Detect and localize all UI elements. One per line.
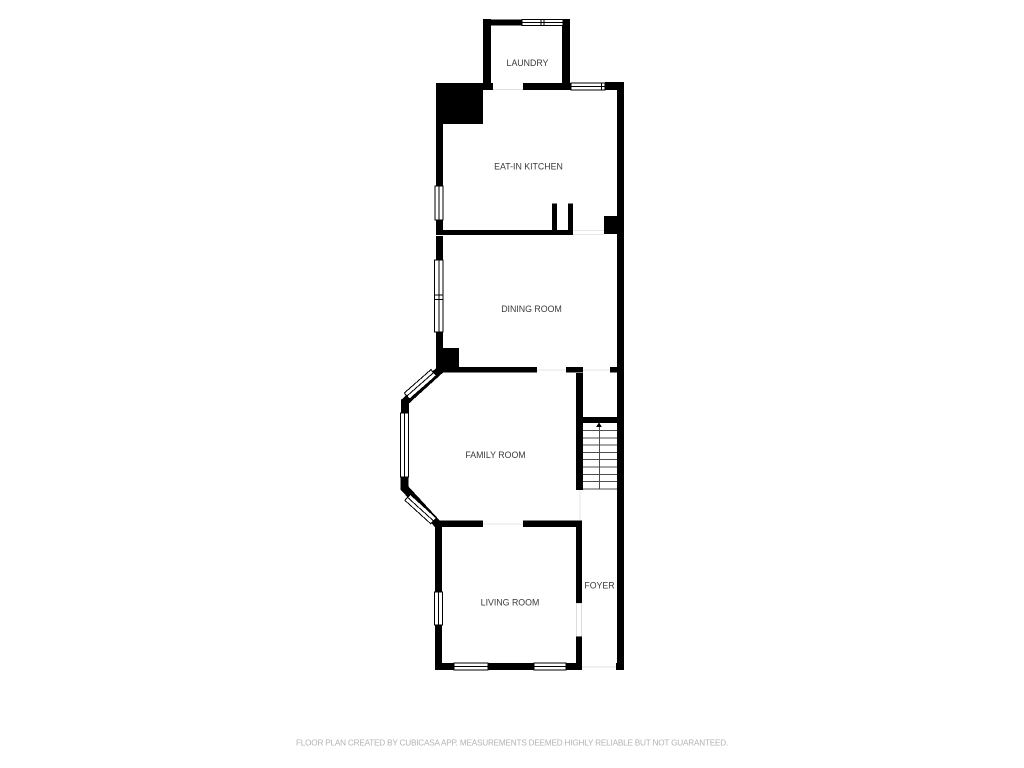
svg-text:LIVING ROOM: LIVING ROOM xyxy=(481,598,540,608)
svg-text:FAMILY ROOM: FAMILY ROOM xyxy=(465,450,525,460)
svg-text:FOYER: FOYER xyxy=(584,581,614,591)
svg-text:FLOOR PLAN CREATED BY CUBICASA: FLOOR PLAN CREATED BY CUBICASA APP. MEAS… xyxy=(296,739,728,748)
svg-text:LAUNDRY: LAUNDRY xyxy=(507,58,549,68)
svg-text:DINING ROOM: DINING ROOM xyxy=(501,304,562,314)
svg-text:EAT-IN KITCHEN: EAT-IN KITCHEN xyxy=(494,162,563,172)
